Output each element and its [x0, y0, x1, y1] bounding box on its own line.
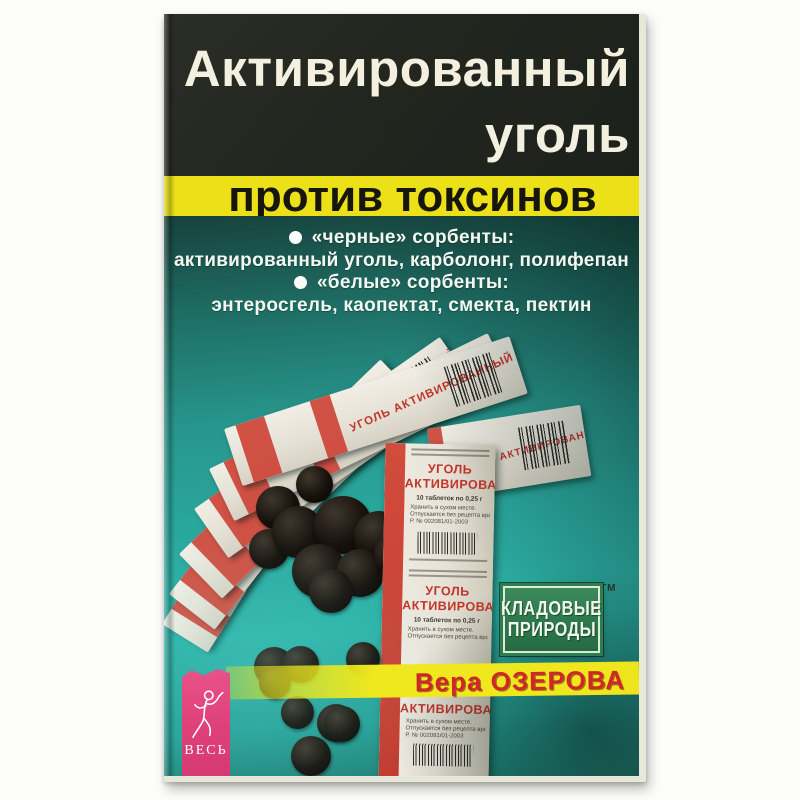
publisher-logo-text: ВЕСЬ: [184, 743, 227, 759]
trademark-mark: ТМ: [600, 583, 616, 594]
list-item-heading: «белые» сорбенты:: [164, 272, 639, 295]
subtitle-band: против токсинов: [164, 176, 639, 216]
book-cover-photo: Активированный уголь против токсинов УГО…: [0, 0, 800, 800]
badge-line-1: КЛАДОВЫЕ: [501, 599, 602, 620]
title-line-2: уголь: [184, 102, 630, 168]
series-badge: КЛАДОВЫЕ ПРИРОДЫ: [503, 586, 600, 653]
author-name: Вера ОЗЕРОВА: [415, 665, 626, 699]
bullet-icon: [294, 276, 307, 289]
title-line-1: Активированный: [184, 36, 630, 102]
charcoal-tablet: [291, 736, 331, 776]
author-banner: Вера ОЗЕРОВА: [226, 661, 639, 699]
list-item: энтеросгель, каопектат, смекта, пектин: [164, 295, 639, 318]
book: Активированный уголь против токсинов УГО…: [164, 14, 646, 782]
pack-label: УГОЛЬ АКТИВИРОВАННЫЙ 10 таблеток по 0,25…: [398, 443, 495, 776]
charcoal-tablet: [324, 706, 360, 742]
book-title: Активированный уголь: [184, 36, 630, 168]
title-panel: Активированный уголь: [164, 14, 639, 176]
barcode: [413, 744, 473, 767]
blister-pack-vertical: УГОЛЬ АКТИВИРОВАННЫЙ 10 таблеток по 0,25…: [378, 443, 495, 776]
charcoal-tablet: [296, 466, 333, 503]
charcoal-tablet: [281, 696, 314, 729]
pack-title: АКТИВИРОВАННЫЙ: [405, 476, 495, 492]
publisher-ribbon: ВЕСЬ: [182, 669, 230, 776]
barcode: [417, 532, 477, 555]
list-item-heading: «черные» сорбенты:: [164, 227, 639, 250]
charcoal-tablet: [309, 569, 353, 613]
bullet-icon: [289, 231, 302, 244]
front-cover: Активированный уголь против токсинов УГО…: [164, 14, 639, 776]
list-item: активированный уголь, карболонг, полифеп…: [164, 250, 639, 273]
sorbent-list: «черные» сорбенты: активированный уголь,…: [164, 227, 639, 317]
pack-title: УГОЛЬ: [405, 461, 495, 477]
badge-line-2: ПРИРОДЫ: [507, 620, 595, 641]
runner-figure-icon: [187, 687, 225, 741]
